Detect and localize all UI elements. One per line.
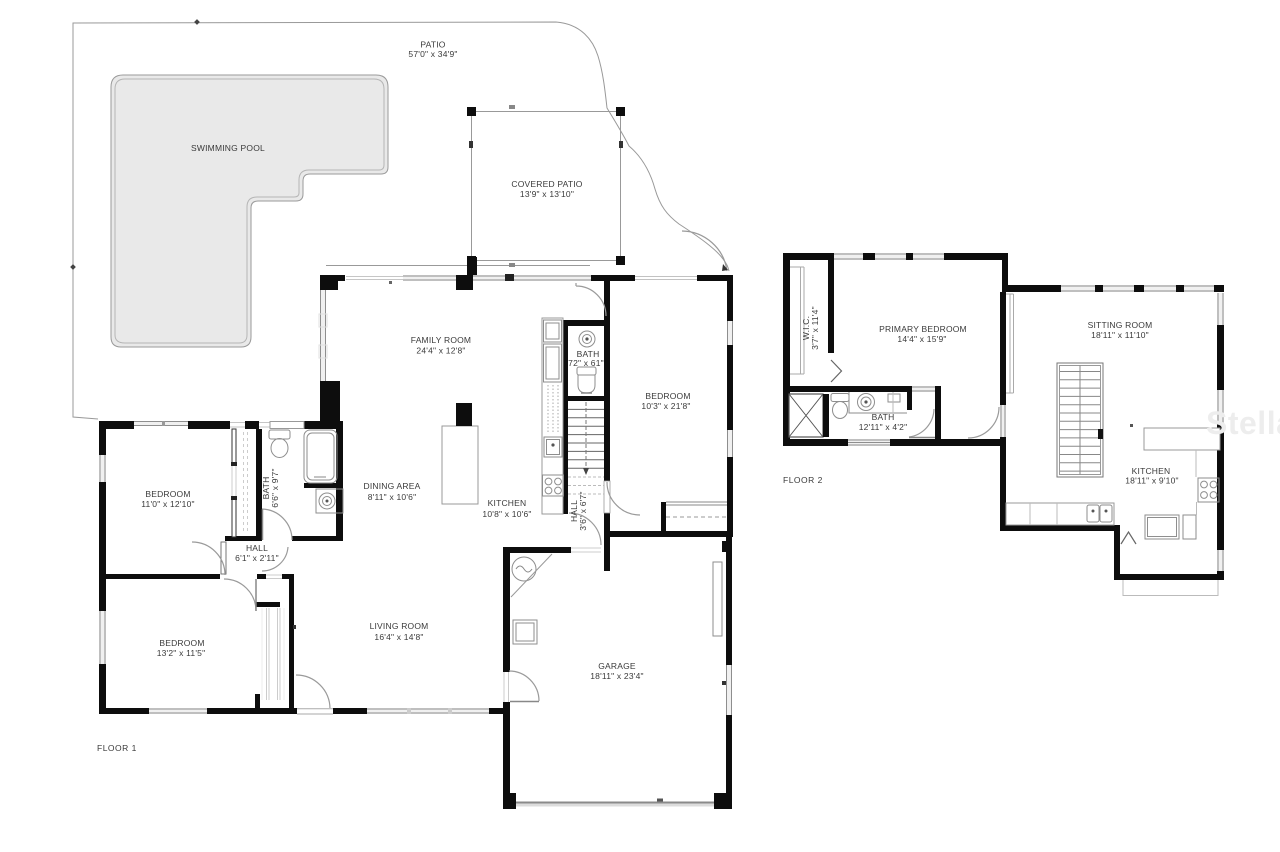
svg-text:GARAGE: GARAGE (598, 661, 636, 671)
svg-text:SWIMMING POOL: SWIMMING POOL (191, 143, 265, 153)
svg-text:18'11" x 11'10": 18'11" x 11'10" (1091, 330, 1149, 340)
svg-text:BEDROOM: BEDROOM (145, 489, 190, 499)
svg-text:SITTING ROOM: SITTING ROOM (1088, 320, 1153, 330)
svg-text:PRIMARY BEDROOM: PRIMARY BEDROOM (879, 324, 967, 334)
svg-text:FLOOR 1: FLOOR 1 (97, 743, 137, 753)
svg-text:14'4" x 15'9": 14'4" x 15'9" (897, 334, 946, 344)
svg-text:18'11" x 23'4": 18'11" x 23'4" (590, 671, 644, 681)
svg-text:3'7" x 11'4": 3'7" x 11'4" (810, 306, 820, 350)
svg-text:FLOOR 2: FLOOR 2 (783, 475, 823, 485)
svg-text:18'11" x 9'10": 18'11" x 9'10" (1125, 476, 1179, 486)
svg-text:6'6" x 9'7": 6'6" x 9'7" (270, 468, 280, 507)
svg-text:8'11" x 10'6": 8'11" x 10'6" (368, 492, 417, 502)
svg-text:KITCHEN: KITCHEN (1132, 466, 1171, 476)
svg-text:StellarMLS: StellarMLS (1206, 405, 1280, 441)
svg-text:PATIO: PATIO (420, 40, 445, 50)
svg-text:6'1" x 2'11": 6'1" x 2'11" (235, 553, 279, 563)
svg-text:13'9" x 13'10": 13'9" x 13'10" (520, 189, 574, 199)
svg-text:11'0" x 12'10": 11'0" x 12'10" (141, 499, 195, 509)
svg-text:COVERED PATIO: COVERED PATIO (511, 179, 582, 189)
svg-text:HALL: HALL (246, 543, 268, 553)
svg-text:10'3" x 21'8": 10'3" x 21'8" (641, 401, 690, 411)
svg-text:10'8" x 10'6": 10'8" x 10'6" (482, 509, 531, 519)
svg-text:3'6" x 6'7": 3'6" x 6'7" (578, 491, 588, 530)
svg-text:BEDROOM: BEDROOM (645, 391, 690, 401)
svg-text:72" x 61": 72" x 61" (568, 358, 604, 368)
svg-text:24'4" x 12'8": 24'4" x 12'8" (416, 346, 465, 356)
svg-text:LIVING ROOM: LIVING ROOM (370, 621, 429, 631)
svg-text:16'4" x 14'8": 16'4" x 14'8" (374, 632, 423, 642)
svg-text:BATH: BATH (872, 412, 895, 422)
svg-text:FAMILY ROOM: FAMILY ROOM (411, 335, 471, 345)
svg-text:57'0" x 34'9": 57'0" x 34'9" (408, 49, 457, 59)
svg-text:13'2" x 11'5": 13'2" x 11'5" (157, 648, 206, 658)
svg-text:BEDROOM: BEDROOM (159, 638, 204, 648)
svg-text:KITCHEN: KITCHEN (488, 498, 527, 508)
svg-text:12'11" x 4'2": 12'11" x 4'2" (859, 422, 908, 432)
svg-text:DINING AREA: DINING AREA (364, 481, 421, 491)
